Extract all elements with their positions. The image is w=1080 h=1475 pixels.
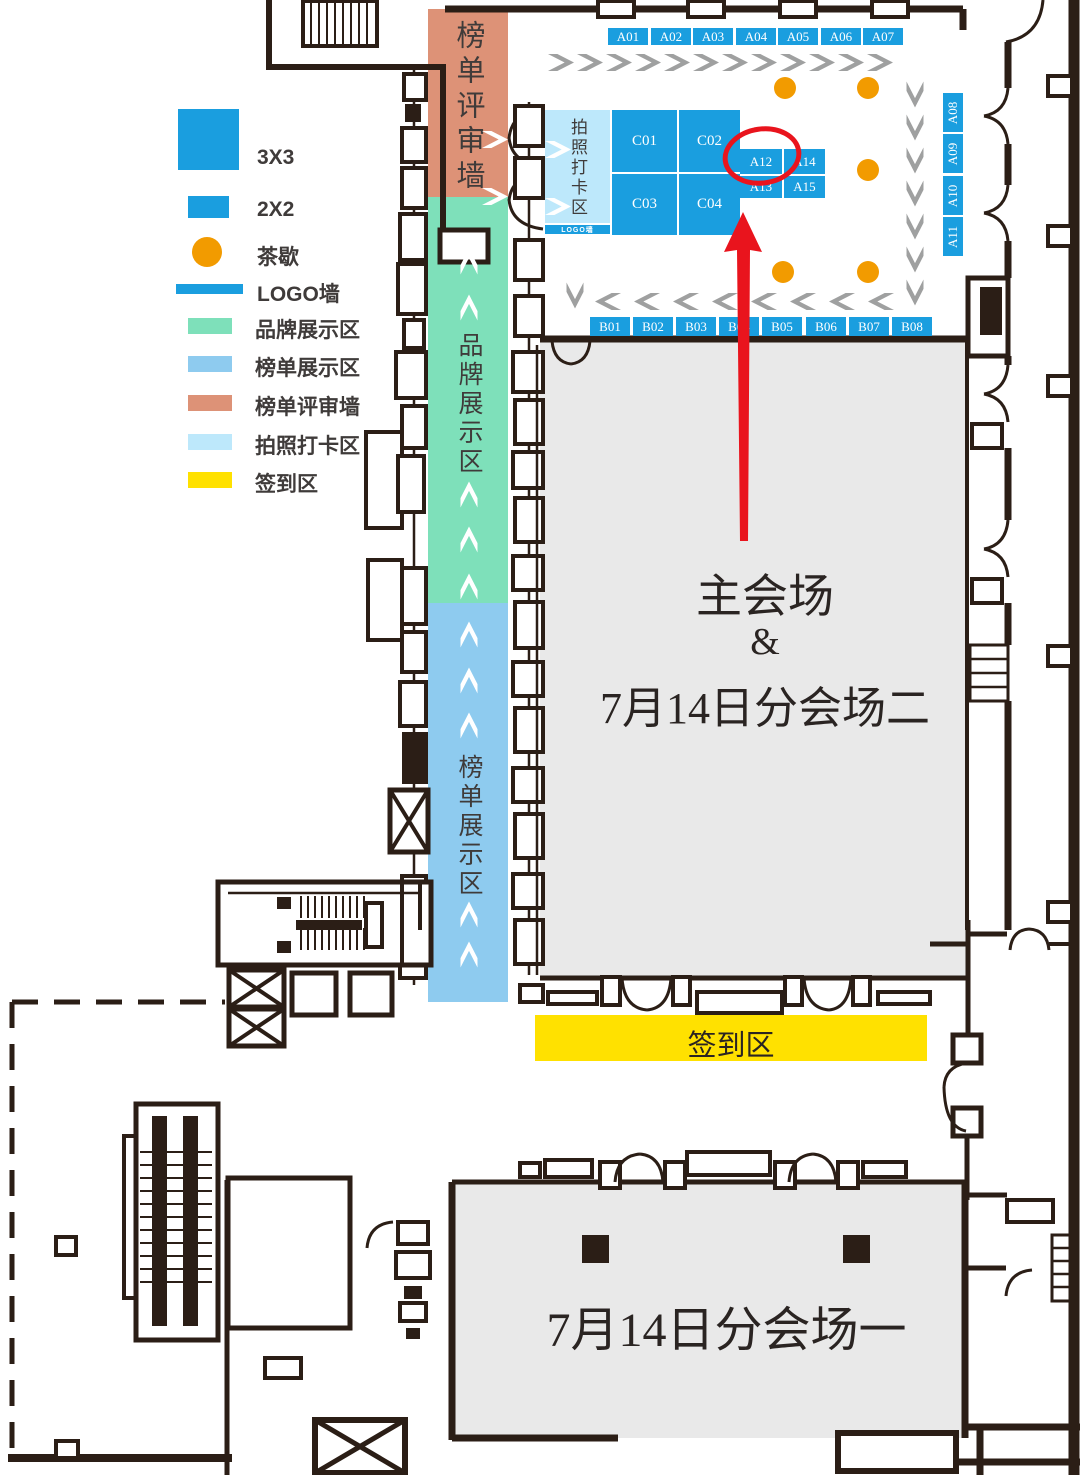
signin-label: 签到区 xyxy=(535,1022,927,1064)
legend-swatch-signin-area xyxy=(188,472,232,488)
brand-area-strip-label: 品牌展示区 xyxy=(428,330,508,478)
booth-a04: A04 xyxy=(736,28,776,45)
legend-label-signin-area: 签到区 xyxy=(255,468,318,498)
legend-label-logo-wall: LOGO墙 xyxy=(257,278,340,308)
chevron-right-icon xyxy=(838,54,864,71)
booth-b05: B05 xyxy=(762,317,802,336)
chevron-right-icon xyxy=(635,54,661,71)
tea-break-dot xyxy=(772,261,794,283)
chevron-left-icon xyxy=(790,293,816,310)
review-wall-strip-label: 榜单评审墙 xyxy=(428,18,508,196)
booth-c02: C02 xyxy=(679,110,740,172)
chevron-left-icon xyxy=(868,293,894,310)
chevron-down-icon xyxy=(907,82,924,108)
booth-a09: A09 xyxy=(943,134,963,173)
logo-wall-bar: LOGO墙 xyxy=(545,225,610,234)
chevron-right-icon xyxy=(751,54,777,71)
chevron-left-icon xyxy=(751,293,777,310)
legend-swatch-list-area xyxy=(188,356,232,372)
booth-b02: B02 xyxy=(633,317,673,336)
floorplan-canvas: LOGO墙 xyxy=(0,0,1080,1475)
legend-label-brand-area: 品牌展示区 xyxy=(255,314,360,344)
chevron-right-icon xyxy=(780,54,806,71)
sub-hall-title: 7月14日分会场一 xyxy=(470,1290,983,1360)
booth-c03: C03 xyxy=(612,174,677,235)
tea-break-dot xyxy=(857,77,879,99)
legend-label-photo-area: 拍照打卡区 xyxy=(255,430,360,460)
chevron-right-icon xyxy=(606,54,632,71)
booth-a13: A13 xyxy=(740,176,782,198)
tea-break-dot xyxy=(857,159,879,181)
chevron-left-icon xyxy=(673,293,699,310)
chevron-right-icon xyxy=(722,54,748,71)
legend-swatch-logo-wall xyxy=(176,284,243,294)
legend-swatch-photo-area xyxy=(188,434,232,450)
booth-a02: A02 xyxy=(651,28,691,45)
legend-label-2x2: 2X2 xyxy=(257,198,294,222)
booth-a03: A03 xyxy=(693,28,733,45)
booth-a06: A06 xyxy=(821,28,861,45)
legend-label-list-area: 榜单展示区 xyxy=(255,352,360,382)
photo-area-label: 拍照打卡区 xyxy=(547,116,608,220)
booth-a10: A10 xyxy=(943,176,963,215)
legend-swatch-review-wall xyxy=(188,395,232,411)
booth-a14: A14 xyxy=(784,149,825,174)
legend-swatch-tea-icon xyxy=(192,237,222,267)
chevron-right-icon xyxy=(577,54,603,71)
booth-a01: A01 xyxy=(608,28,648,45)
booth-a07: A07 xyxy=(863,28,903,45)
chevron-down-icon xyxy=(907,115,924,141)
booth-b07: B07 xyxy=(849,317,889,336)
chevron-down-icon xyxy=(907,280,924,306)
main-hall-title-line3: 7月14日分会场二 xyxy=(540,672,990,736)
chevron-left-icon xyxy=(712,293,738,310)
booth-a08: A08 xyxy=(943,93,963,132)
chevron-left-icon xyxy=(595,293,621,310)
chevron-down-icon xyxy=(567,283,584,309)
legend-swatch-3x3 xyxy=(178,109,239,170)
legend-swatch-2x2 xyxy=(188,196,229,218)
logo-wall-label: LOGO墙 xyxy=(561,225,594,235)
chevron-right-icon xyxy=(867,54,893,71)
tea-break-dot xyxy=(774,77,796,99)
booth-c04: C04 xyxy=(679,174,740,235)
main-hall-title-amp: & xyxy=(540,620,990,664)
booth-b06: B06 xyxy=(806,317,846,336)
legend-label-3x3: 3X3 xyxy=(257,146,294,170)
chevron-right-icon xyxy=(809,54,835,71)
booth-b04: B04 xyxy=(719,317,759,336)
booth-b03: B03 xyxy=(676,317,716,336)
booth-c01: C01 xyxy=(612,110,677,172)
main-hall-title-line1: 主会场 xyxy=(540,560,990,626)
chevron-down-icon xyxy=(907,148,924,174)
booth-a05: A05 xyxy=(778,28,818,45)
booth-a11: A11 xyxy=(943,217,963,256)
chevron-right-icon xyxy=(548,54,574,71)
chevron-right-icon xyxy=(664,54,690,71)
booth-b08: B08 xyxy=(892,317,932,336)
booth-b01: B01 xyxy=(590,317,630,336)
chevron-down-icon xyxy=(907,181,924,207)
legend-swatch-brand-area xyxy=(188,318,232,334)
chevron-left-icon xyxy=(634,293,660,310)
chevron-left-icon xyxy=(829,293,855,310)
chevron-down-icon xyxy=(907,247,924,273)
chevron-down-icon xyxy=(907,214,924,240)
legend-label-review-wall: 榜单评审墙 xyxy=(255,391,360,421)
booth-a15: A15 xyxy=(784,176,825,198)
legend-label-tea: 茶歇 xyxy=(257,241,299,271)
booth-a12: A12 xyxy=(740,149,782,174)
tea-break-dot xyxy=(857,261,879,283)
list-area-strip-label: 榜单展示区 xyxy=(428,752,508,900)
chevron-right-icon xyxy=(693,54,719,71)
